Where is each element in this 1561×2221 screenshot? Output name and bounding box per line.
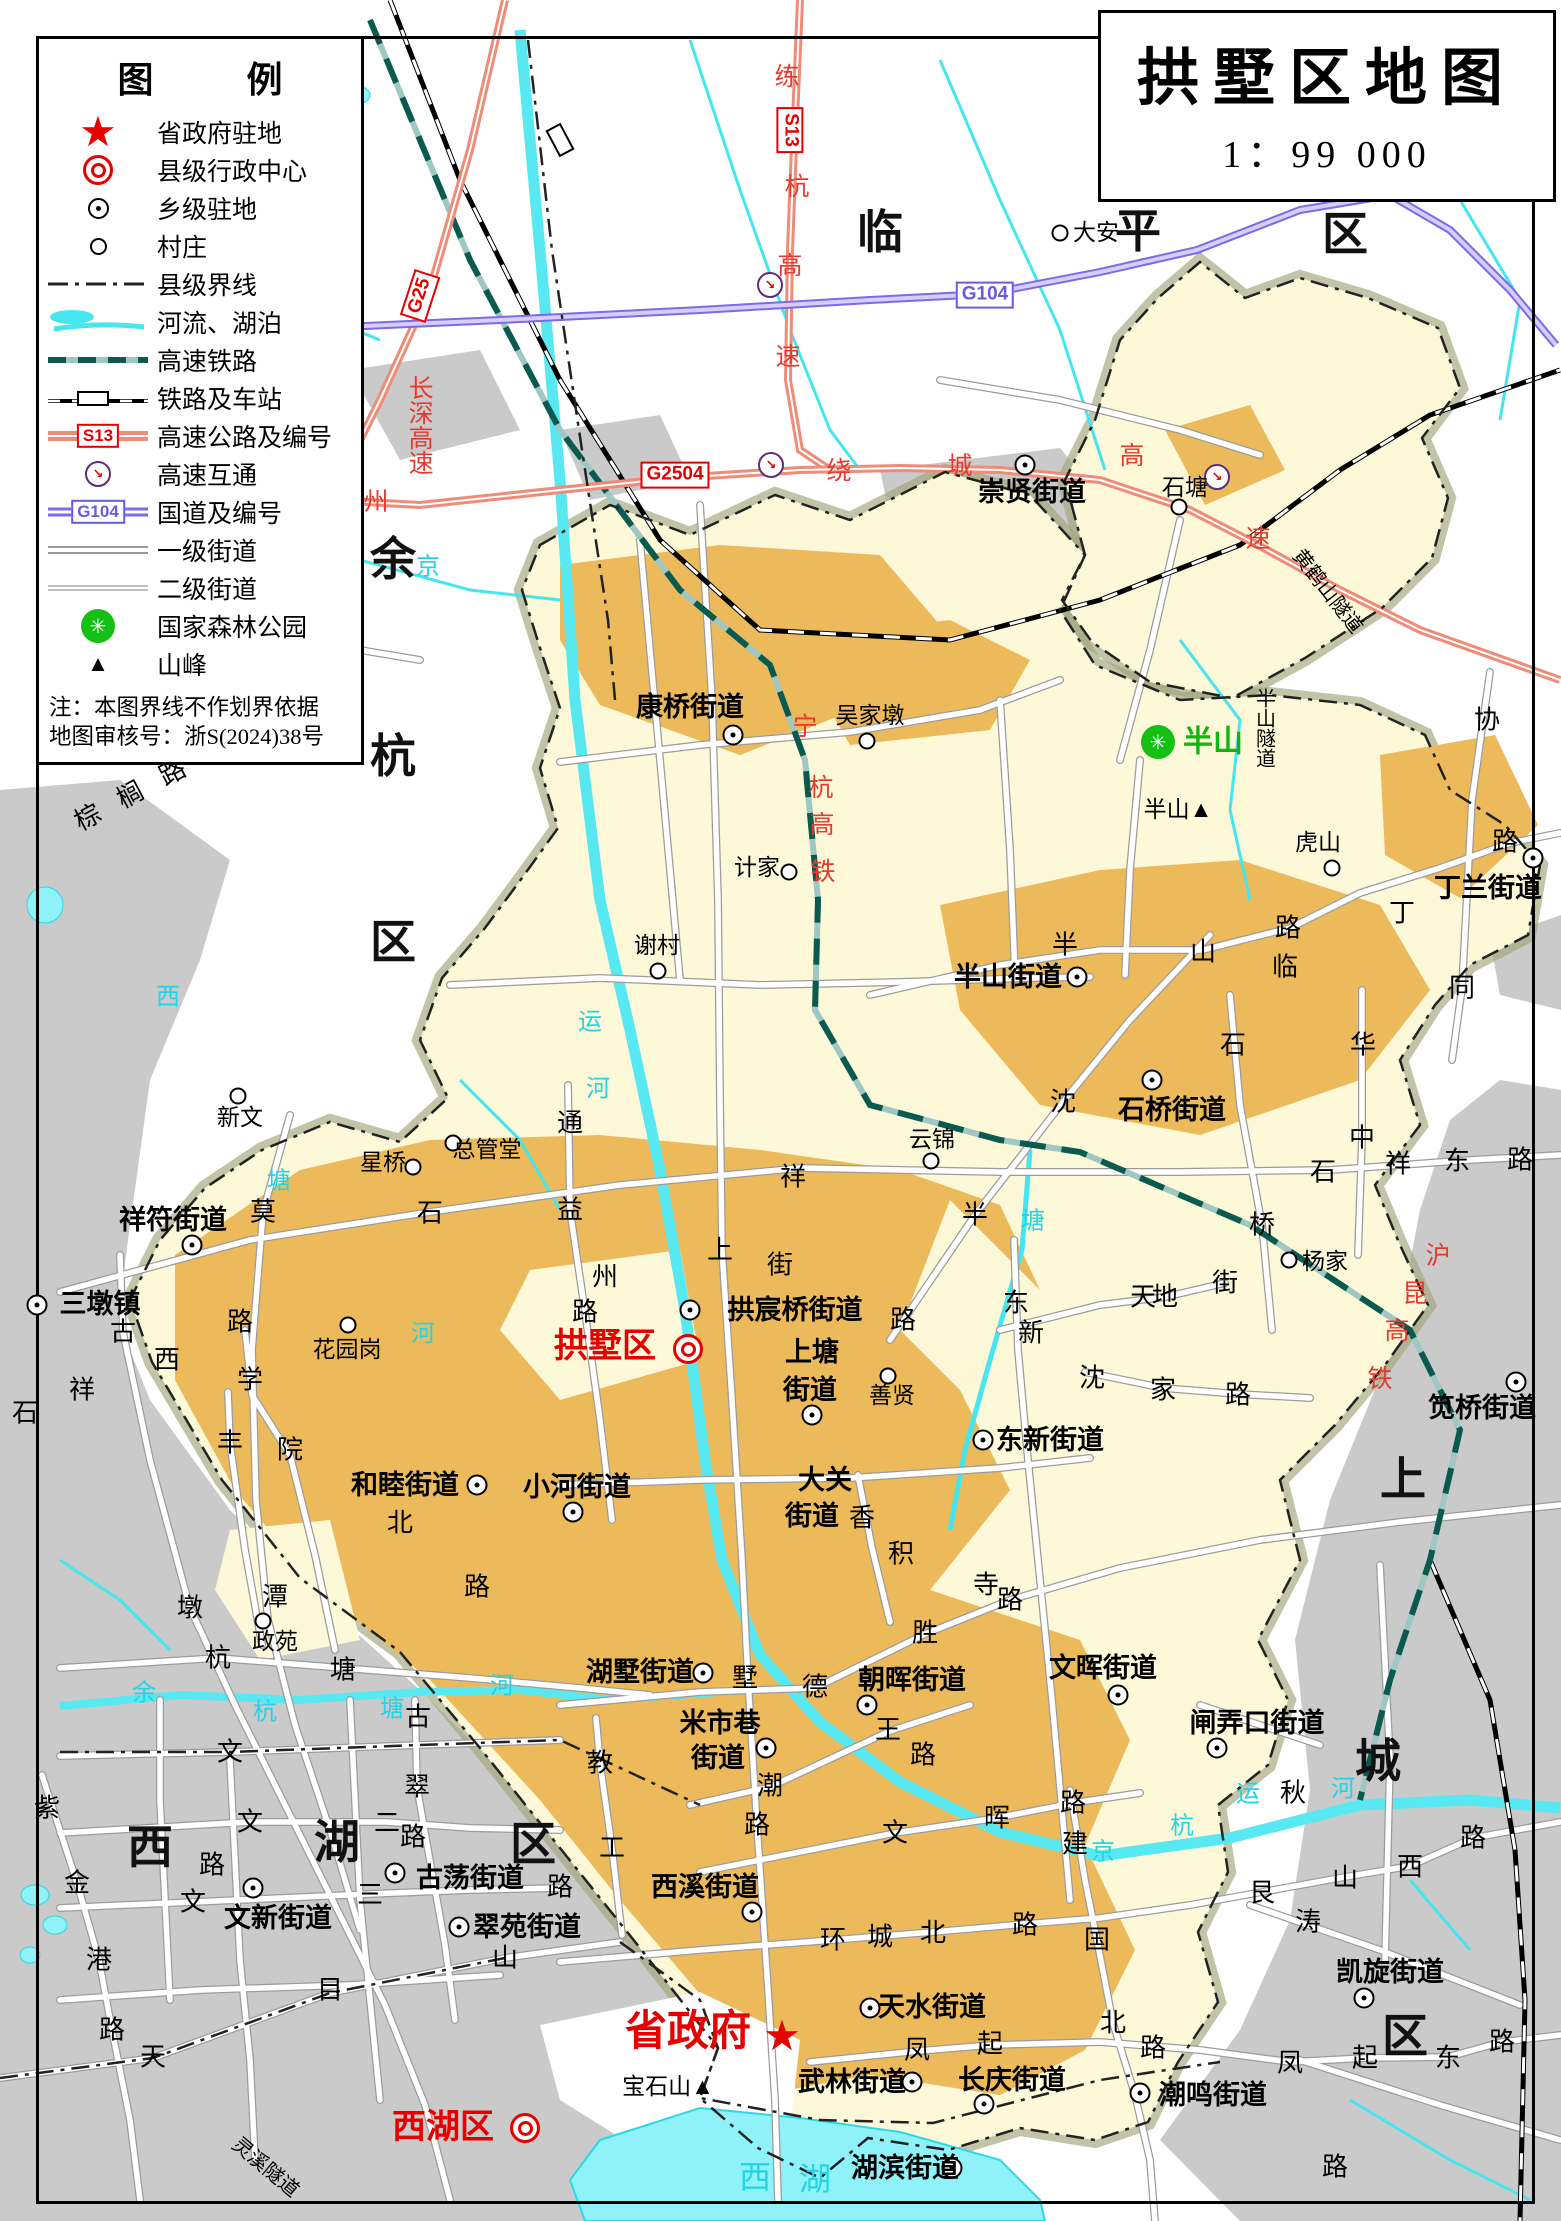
map-label: 铁 — [810, 860, 835, 886]
legend-note-line: 注：本图界线不作划界依据 — [49, 693, 355, 722]
map-label: 翠苑街道 — [473, 1913, 581, 1941]
map-label: 起 — [977, 2030, 1003, 2057]
legend-item: ↘高速互通 — [39, 455, 361, 493]
map-label: 莫 — [250, 1198, 276, 1225]
highway-badge-g104: G104 — [956, 282, 1014, 309]
map-label: 天 — [140, 2043, 166, 2070]
map-label: 山 — [1332, 1864, 1358, 1891]
map-label: 胜 — [912, 1619, 938, 1646]
village-icon — [1281, 1252, 1298, 1269]
town-seat-icon — [742, 1902, 763, 1923]
map-label: 善贤 — [869, 1384, 915, 1408]
map-label: 家 — [1150, 1376, 1176, 1403]
map-title: 拱墅区地图 — [1101, 27, 1553, 117]
map-label: 京 — [416, 555, 440, 580]
town-seat-icon — [243, 1878, 264, 1899]
map-label: 东 — [1444, 1147, 1470, 1174]
county-boundary-icon — [48, 279, 148, 289]
map-label: 潮鸣街道 — [1159, 2081, 1267, 2109]
map-label: 湖滨街道 — [851, 2154, 959, 2182]
star-icon: ★ — [79, 111, 117, 153]
map-label: 祥 — [1385, 1150, 1411, 1177]
map-label: 上 — [1380, 1456, 1426, 1504]
label-provincial-government: 省政府 — [625, 2010, 751, 2054]
county-center-icon — [510, 2113, 540, 2143]
map-label: 三 — [357, 1881, 383, 1908]
map-label: 路 — [199, 1851, 225, 1878]
legend-item: 乡级驻地 — [39, 189, 361, 227]
map-label: 学 — [237, 1366, 263, 1393]
map-label: 潮 — [757, 1772, 783, 1799]
map-label: 祥 — [69, 1376, 95, 1403]
town-seat-icon — [385, 1863, 406, 1884]
map-label: 涛 — [1295, 1908, 1321, 1935]
town-seat-icon — [1142, 1070, 1163, 1091]
town-seat-icon — [1207, 1738, 1228, 1759]
town-seat-icon — [449, 1917, 470, 1938]
map-label: 路 — [1060, 1789, 1086, 1816]
map-label: 余 — [132, 1681, 156, 1706]
map-label: 街道 — [785, 1502, 839, 1530]
map-label: 石 — [1220, 1031, 1246, 1058]
map-label: 路 — [1322, 2153, 1348, 2180]
map-label: 河 — [490, 1674, 514, 1699]
map-label: 笕桥街道 — [1428, 1394, 1536, 1422]
map-label: 桥 — [1249, 1211, 1275, 1238]
map-label: 朝晖街道 — [858, 1666, 966, 1694]
map-label: 街 — [767, 1251, 793, 1278]
map-label: 总管堂 — [453, 1138, 522, 1162]
map-label: 运 — [1236, 1782, 1260, 1807]
map-label: 丁兰街道 — [1434, 874, 1542, 902]
interchange-icon: ↘ — [758, 452, 784, 478]
map-label: 工 — [599, 1834, 625, 1861]
map-label: 湖墅街道 — [586, 1658, 694, 1686]
map-label: 路 — [1489, 2028, 1515, 2055]
village-icon — [255, 1613, 272, 1630]
map-label: 西 — [156, 985, 180, 1010]
map-label: 益 — [557, 1196, 583, 1223]
map-label: 新 — [1018, 1319, 1044, 1346]
map-label: 石塘 — [1162, 476, 1208, 500]
map-label: 虎山 — [1295, 831, 1341, 855]
map-label: 州 — [592, 1263, 618, 1290]
map-label: 艮 — [1249, 1879, 1275, 1906]
map-label: 塘 — [267, 1169, 291, 1194]
map-label: 西溪街道 — [651, 1873, 759, 1901]
map-label: 云锦 — [909, 1128, 955, 1152]
map-label: 半 — [1052, 931, 1078, 958]
map-label: 半山街道 — [954, 963, 1062, 991]
map-label: 凤 — [1277, 2049, 1303, 2076]
map-label: 街道 — [691, 1744, 745, 1772]
map-label: 教 — [587, 1749, 613, 1776]
map-label: 东 — [1435, 2044, 1461, 2071]
legend-item: 河流、湖泊 — [39, 303, 361, 341]
map-label: 祥符街道 — [119, 1206, 227, 1234]
map-label: 院 — [277, 1436, 303, 1463]
map-label: 秋 — [1280, 1779, 1306, 1806]
town-seat-icon — [723, 725, 744, 746]
map-page: 图 例 ★省政府驻地县级行政中心乡级驻地村庄县级界线河流、湖泊高速铁路铁路及车站… — [0, 0, 1561, 2221]
map-label: 杨家 — [1302, 1250, 1348, 1274]
legend-item-label: 山峰 — [157, 646, 207, 682]
map-label: 石 — [12, 1399, 38, 1426]
double-circle-icon — [83, 155, 113, 185]
map-label: 路 — [572, 1298, 598, 1325]
map-label: 路 — [547, 1873, 573, 1900]
map-label: 米市巷 — [680, 1709, 761, 1737]
map-label: 沪 — [1425, 1244, 1450, 1270]
map-label: 国 — [1084, 1926, 1110, 1953]
village-icon — [1052, 225, 1069, 242]
dot-circle-icon — [88, 198, 109, 219]
map-label: 康桥街道 — [636, 693, 744, 721]
map-label: 文 — [217, 1738, 243, 1765]
legend-item: 村庄 — [39, 227, 361, 265]
map-label: 湖 — [799, 2163, 831, 2197]
legend-item-label: 高速铁路 — [157, 342, 257, 378]
map-label: 祥 — [780, 1163, 806, 1190]
map-label: 西 — [127, 1824, 173, 1872]
map-label: 德 — [802, 1673, 828, 1700]
railway-icon — [48, 389, 148, 407]
map-label: 王 — [875, 1716, 901, 1743]
map-label: 崇贤街道 — [978, 478, 1086, 506]
map-label: 拱宸桥街道 — [728, 1296, 863, 1324]
map-label: 环 — [820, 1926, 846, 1953]
town-seat-icon — [857, 1695, 878, 1716]
map-label: 路 — [890, 1306, 916, 1333]
legend-items: ★省政府驻地县级行政中心乡级驻地村庄县级界线河流、湖泊高速铁路铁路及车站S13高… — [39, 113, 361, 683]
map-label: 半山隧道 — [1253, 688, 1274, 768]
village-icon — [859, 733, 876, 750]
forest-park-icon: ✳ — [81, 609, 115, 643]
map-label: 丰 — [217, 1429, 243, 1456]
legend-item: 高速铁路 — [39, 341, 361, 379]
legend-item-label: 二级街道 — [157, 570, 257, 606]
map-label: 武林街道 — [798, 2068, 906, 2096]
legend-note-line: 地图审核号：浙S(2024)38号 — [49, 722, 355, 751]
town-seat-icon — [756, 1738, 777, 1759]
map-label: 西 — [1397, 1853, 1423, 1880]
map-label: 路 — [227, 1308, 253, 1335]
map-label: 路 — [1140, 2034, 1166, 2061]
county-center-icon — [673, 1334, 703, 1364]
map-label: 街 — [1212, 1269, 1238, 1296]
town-seat-icon — [182, 1235, 203, 1256]
map-label: 大关 — [798, 1466, 852, 1494]
map-label: 区 — [1382, 2013, 1428, 2061]
map-label: 港 — [86, 1946, 112, 1973]
secondary-street-icon — [48, 584, 148, 592]
national-road-badge: G104 — [71, 500, 125, 524]
primary-street-icon — [48, 545, 148, 555]
village-icon — [340, 1317, 357, 1334]
map-label: 城 — [867, 1923, 893, 1950]
map-label: 城 — [947, 454, 972, 480]
legend-notes: 注：本图界线不作划界依据 地图审核号：浙S(2024)38号 — [49, 693, 355, 752]
interchange-icon: ↘ — [85, 461, 111, 487]
map-label: 建 — [1062, 1830, 1088, 1857]
legend-item-label: 高速公路及编号 — [157, 418, 332, 454]
map-label: 凤 — [904, 2036, 930, 2063]
map-label: 沈 — [1050, 1088, 1076, 1115]
map-label: 文新街道 — [224, 1904, 332, 1932]
map-label: 金 — [64, 1869, 90, 1896]
map-label: 墅 — [732, 1664, 758, 1691]
map-label: 塘 — [380, 1697, 404, 1722]
town-seat-icon — [1067, 967, 1088, 988]
legend-item: G104国道及编号 — [39, 493, 361, 531]
legend-item: 铁路及车站 — [39, 379, 361, 417]
map-label: 临 — [1272, 953, 1298, 980]
legend-item-label: 河流、湖泊 — [157, 304, 282, 340]
map-label: 山 — [1190, 938, 1216, 965]
legend-item: S13高速公路及编号 — [39, 417, 361, 455]
map-label: 北 — [920, 1919, 946, 1946]
map-label: 绕 — [826, 459, 851, 485]
map-label: 华 — [1350, 1031, 1376, 1058]
label-xihu-seat: 西湖区 — [392, 2110, 494, 2146]
map-label: 平 — [1115, 208, 1161, 256]
town-seat-icon — [974, 2094, 995, 2115]
map-label: 墩 — [177, 1594, 203, 1621]
map-label: 目 — [317, 1976, 343, 2003]
map-label: 区 — [370, 919, 416, 967]
map-label: 铁 — [1367, 1367, 1392, 1393]
map-label: 速 — [775, 345, 800, 371]
map-label: 塘 — [1021, 1209, 1045, 1234]
map-label: 路 — [744, 1811, 770, 1838]
map-label: 天水街道 — [878, 1993, 986, 2021]
town-seat-icon — [1015, 455, 1036, 476]
map-label: 三墩镇 — [60, 1290, 141, 1318]
town-seat-icon — [467, 1475, 488, 1496]
map-label: 石桥街道 — [1118, 1096, 1226, 1124]
village-icon — [405, 1159, 422, 1176]
map-label: 杭 — [808, 776, 833, 802]
map-label: 协 — [1474, 706, 1500, 733]
village-icon — [1324, 860, 1341, 877]
map-label: 河 — [586, 1077, 610, 1102]
map-label: 同 — [1449, 974, 1475, 1001]
map-label: 路 — [1275, 914, 1301, 941]
map-label: 古荡街道 — [416, 1864, 524, 1892]
map-label: 北 — [387, 1509, 413, 1536]
map-label: 古 — [405, 1703, 431, 1730]
map-label: 高 — [809, 813, 834, 839]
map-label: 通 — [557, 1109, 583, 1136]
map-label: 古 — [110, 1318, 136, 1345]
map-label: 上 — [707, 1236, 733, 1263]
legend-item-label: 县级界线 — [157, 266, 257, 302]
legend-item: ▲山峰 — [39, 645, 361, 683]
map-label: 石 — [417, 1199, 443, 1226]
legend-item: 县级行政中心 — [39, 151, 361, 189]
map-label: 石 — [1310, 1158, 1336, 1185]
legend-item: 一级街道 — [39, 531, 361, 569]
map-label: 紫 — [34, 1794, 60, 1821]
expressway-badge: S13 — [77, 424, 119, 448]
map-label: 街道 — [783, 1376, 837, 1404]
map-label: 新文 — [217, 1106, 263, 1130]
map-label: 星桥 — [360, 1151, 406, 1175]
legend-item-label: 铁路及车站 — [157, 380, 282, 416]
map-label: 文 — [237, 1808, 263, 1835]
map-label: 长深高速 — [405, 375, 431, 475]
map-label: 西 — [739, 2161, 771, 2195]
legend-item-label: 乡级驻地 — [157, 190, 257, 226]
map-label: 小河街道 — [523, 1473, 631, 1501]
map-label: 山 — [492, 1944, 518, 1971]
map-label: 半 — [962, 1201, 988, 1228]
legend-item-label: 一级街道 — [157, 532, 257, 568]
town-seat-icon — [563, 1502, 584, 1523]
map-label: 晖 — [984, 1804, 1010, 1831]
legend-item-label: 高速互通 — [157, 456, 257, 492]
map-label: 宁 — [792, 715, 817, 741]
map-label: 文 — [180, 1888, 206, 1915]
map-label: 文晖街道 — [1049, 1654, 1157, 1682]
village-icon — [1171, 499, 1188, 516]
map-label: 练 — [774, 65, 799, 91]
map-label: 凯旋街道 — [1336, 1958, 1444, 1986]
map-label: 临 — [857, 209, 903, 257]
label-banshan-forest-park: 半山 — [1183, 726, 1243, 758]
map-label: 潭 — [262, 1583, 288, 1610]
town-seat-icon — [973, 1430, 994, 1451]
hsr-icon — [48, 355, 148, 365]
map-label: 长庆街道 — [958, 2066, 1066, 2094]
map-label: 中 — [1349, 1124, 1375, 1151]
map-label: 积 — [888, 1540, 914, 1567]
map-label: 路 — [997, 1586, 1023, 1613]
map-label: 路 — [1492, 828, 1518, 855]
town-seat-icon — [802, 1405, 823, 1426]
map-label: 上塘 — [785, 1338, 839, 1366]
map-label: 沈 — [1079, 1364, 1105, 1391]
town-seat-icon — [1523, 848, 1544, 869]
map-label: 京 — [1091, 1840, 1115, 1865]
map-label: 花园岗 — [313, 1338, 382, 1362]
legend-item: ✳国家森林公园 — [39, 607, 361, 645]
map-label: 路 — [400, 1823, 426, 1850]
town-seat-icon — [680, 1300, 701, 1321]
map-label: 河 — [1331, 1777, 1355, 1802]
map-label: 杭 — [784, 175, 809, 201]
map-label: 东新街道 — [996, 1426, 1104, 1454]
map-label: 杭 — [370, 733, 416, 781]
map-label: 路 — [1225, 1381, 1251, 1408]
map-label: 州 — [363, 490, 388, 516]
map-label: 运 — [578, 1010, 602, 1035]
map-label: 丁 — [1389, 899, 1415, 926]
village-icon — [781, 864, 798, 881]
map-label: 谢村 — [634, 934, 680, 958]
map-label: 城 — [1355, 1738, 1401, 1786]
map-label: 闸弄口街道 — [1190, 1709, 1325, 1737]
map-label: 北 — [1100, 2009, 1126, 2036]
highway-badge-s13: S13 — [777, 107, 804, 153]
village-icon — [230, 1088, 247, 1105]
legend-item-label: 县级行政中心 — [157, 152, 307, 188]
map-label: 路 — [910, 1741, 936, 1768]
title-panel: 拱墅区地图 1：99 000 — [1098, 10, 1556, 202]
map-label: 东 — [1003, 1289, 1029, 1316]
circle-icon — [90, 238, 107, 255]
map-label: 政苑 — [252, 1630, 298, 1654]
map-label: 文 — [882, 1819, 908, 1846]
map-label: 香 — [849, 1504, 875, 1531]
river-icon — [48, 308, 148, 336]
forest-park-icon: ✳ — [1141, 725, 1175, 759]
map-label: 宝石山▲ — [622, 2075, 714, 2099]
map-label: 塘 — [330, 1656, 356, 1683]
legend-item: 二级街道 — [39, 569, 361, 607]
village-icon — [923, 1153, 940, 1170]
town-seat-icon — [27, 1295, 48, 1316]
map-label: 翠 — [404, 1773, 430, 1800]
map-label: 路 — [1507, 1146, 1533, 1173]
map-label: 路 — [99, 2016, 125, 2043]
map-label: 起 — [1352, 2044, 1378, 2071]
town-seat-icon — [1354, 1988, 1375, 2009]
map-label: 高 — [777, 254, 802, 280]
highway-badge-g2504: G2504 — [640, 462, 709, 489]
map-label: 和睦街道 — [351, 1471, 459, 1499]
map-label: 西 — [154, 1346, 180, 1373]
town-seat-icon — [1108, 1685, 1129, 1706]
map-scale: 1：99 000 — [1101, 123, 1553, 178]
town-seat-icon — [1506, 1372, 1527, 1393]
map-label: 吴家墩 — [836, 704, 905, 728]
legend-item-label: 国道及编号 — [157, 494, 282, 530]
map-label: 半山▲ — [1144, 798, 1213, 822]
village-icon — [650, 963, 667, 980]
provincial-government-star-icon: ★ — [763, 2015, 801, 2057]
map-label: 区 — [1322, 211, 1368, 259]
legend-item: ★省政府驻地 — [39, 113, 361, 151]
map-label: 速 — [1245, 527, 1270, 553]
town-seat-icon — [693, 1663, 714, 1684]
map-label: 昆 — [1402, 1282, 1427, 1308]
legend-item: 县级界线 — [39, 265, 361, 303]
map-label: 计家 — [734, 856, 780, 880]
map-label: 河 — [411, 1322, 435, 1347]
town-seat-icon — [1130, 2083, 1151, 2104]
map-label: 二 — [374, 1809, 400, 1836]
map-label: 高 — [1119, 444, 1144, 470]
map-label: 路 — [1460, 1824, 1486, 1851]
map-label: 地 — [1152, 1283, 1178, 1310]
map-label: 路 — [464, 1573, 490, 1600]
legend-panel: 图 例 ★省政府驻地县级行政中心乡级驻地村庄县级界线河流、湖泊高速铁路铁路及车站… — [36, 36, 364, 765]
map-label: 湖 — [314, 1819, 360, 1867]
legend-item-label: 省政府驻地 — [157, 114, 282, 150]
map-label: 寺 — [973, 1571, 999, 1598]
legend-item-label: 村庄 — [157, 228, 207, 264]
map-label: 路 — [1012, 1911, 1038, 1938]
map-label: 杭 — [205, 1644, 231, 1671]
map-label: 大安 — [1073, 221, 1119, 245]
map-label: 余 — [370, 536, 416, 584]
legend-item-label: 国家森林公园 — [157, 608, 307, 644]
peak-icon: ▲ — [87, 651, 109, 677]
legend-heading: 图 例 — [39, 51, 361, 103]
label-gongshu-seat: 拱墅区 — [554, 1329, 656, 1365]
map-label: 杭 — [1170, 1814, 1194, 1839]
